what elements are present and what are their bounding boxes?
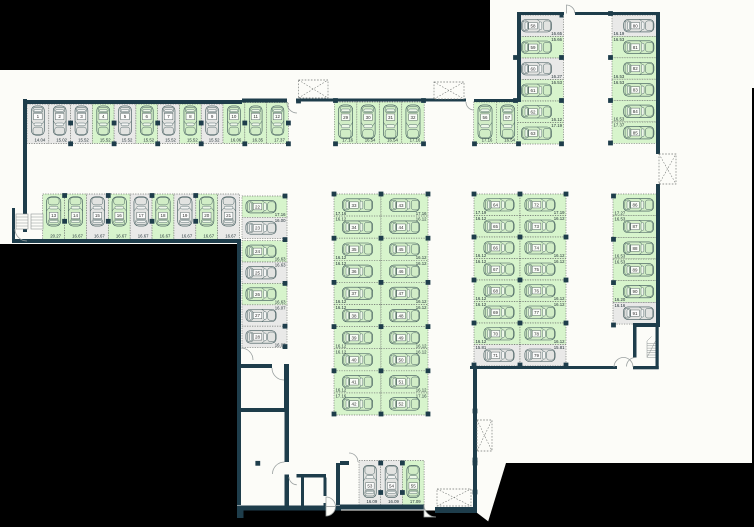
svg-text:62: 62 xyxy=(530,109,536,114)
svg-text:15: 15 xyxy=(95,213,101,218)
svg-text:15.52: 15.52 xyxy=(165,138,176,143)
svg-text:81: 81 xyxy=(633,45,639,50)
svg-text:77: 77 xyxy=(534,310,540,315)
svg-text:50: 50 xyxy=(398,357,404,362)
svg-text:17.27: 17.27 xyxy=(615,210,626,215)
svg-text:90: 90 xyxy=(632,289,638,294)
svg-text:16.27: 16.27 xyxy=(551,74,562,79)
svg-text:16.54: 16.54 xyxy=(387,138,398,143)
svg-text:80: 80 xyxy=(633,23,639,28)
svg-text:17.19: 17.19 xyxy=(476,210,487,215)
svg-text:86: 86 xyxy=(632,203,638,208)
svg-text:15.81: 15.81 xyxy=(554,345,565,350)
svg-text:46: 46 xyxy=(398,269,404,274)
svg-text:16.53: 16.53 xyxy=(615,260,626,265)
svg-text:17.09: 17.09 xyxy=(410,499,421,504)
svg-text:35: 35 xyxy=(351,247,357,252)
svg-text:67: 67 xyxy=(493,267,499,272)
svg-text:16.12: 16.12 xyxy=(476,302,487,307)
svg-text:16.67: 16.67 xyxy=(138,234,149,239)
svg-text:82: 82 xyxy=(633,66,639,71)
svg-text:25: 25 xyxy=(255,270,261,275)
svg-text:56: 56 xyxy=(483,115,489,120)
svg-text:16.53: 16.53 xyxy=(614,37,625,42)
svg-text:16.67: 16.67 xyxy=(225,234,236,239)
svg-text:16.67: 16.67 xyxy=(94,234,105,239)
svg-text:16.12: 16.12 xyxy=(476,339,487,344)
svg-text:16.12: 16.12 xyxy=(554,216,565,221)
svg-text:16.12: 16.12 xyxy=(336,388,347,393)
svg-text:75: 75 xyxy=(534,267,540,272)
svg-text:88: 88 xyxy=(632,246,638,251)
svg-text:11: 11 xyxy=(253,114,258,119)
svg-text:16.09: 16.09 xyxy=(366,499,377,504)
svg-text:17.16: 17.16 xyxy=(275,212,286,217)
svg-text:74: 74 xyxy=(534,245,540,250)
svg-text:30: 30 xyxy=(366,115,372,120)
svg-text:37: 37 xyxy=(351,291,357,296)
svg-text:16.12: 16.12 xyxy=(554,339,565,344)
svg-text:16.35: 16.35 xyxy=(252,138,263,143)
svg-text:16.12: 16.12 xyxy=(416,388,427,393)
svg-text:55: 55 xyxy=(411,484,417,489)
svg-text:16.12: 16.12 xyxy=(336,349,347,354)
svg-text:16.07: 16.07 xyxy=(275,305,286,310)
svg-text:66: 66 xyxy=(493,245,499,250)
svg-text:14: 14 xyxy=(73,213,79,218)
svg-text:17.16: 17.16 xyxy=(410,138,421,143)
svg-text:83: 83 xyxy=(633,88,639,93)
svg-text:16.12: 16.12 xyxy=(476,296,487,301)
svg-text:89: 89 xyxy=(632,268,638,273)
svg-text:16.12: 16.12 xyxy=(336,343,347,348)
svg-text:16.53: 16.53 xyxy=(615,216,626,221)
svg-text:16.12: 16.12 xyxy=(336,217,347,222)
svg-text:16.12: 16.12 xyxy=(336,305,347,310)
svg-text:23: 23 xyxy=(255,226,261,231)
svg-text:32: 32 xyxy=(410,115,416,120)
svg-text:22: 22 xyxy=(255,204,261,209)
svg-text:16.12: 16.12 xyxy=(416,343,427,348)
svg-text:73: 73 xyxy=(534,224,540,229)
svg-text:36: 36 xyxy=(351,269,357,274)
svg-text:38: 38 xyxy=(351,313,357,318)
svg-text:47: 47 xyxy=(398,291,404,296)
svg-text:16.53: 16.53 xyxy=(551,80,562,85)
svg-text:17.19: 17.19 xyxy=(551,123,562,128)
svg-text:42: 42 xyxy=(351,402,357,407)
svg-text:71: 71 xyxy=(493,353,499,358)
svg-text:16.12: 16.12 xyxy=(476,259,487,264)
svg-text:16.12: 16.12 xyxy=(476,253,487,258)
svg-text:45: 45 xyxy=(398,247,404,252)
svg-text:79: 79 xyxy=(534,353,540,358)
svg-text:16.19: 16.19 xyxy=(614,31,625,36)
svg-text:57: 57 xyxy=(505,115,511,120)
svg-text:61: 61 xyxy=(530,88,536,93)
svg-text:76: 76 xyxy=(534,288,540,293)
svg-text:17.37: 17.37 xyxy=(274,138,285,143)
svg-text:16: 16 xyxy=(117,213,123,218)
svg-text:15.81: 15.81 xyxy=(476,345,487,350)
svg-text:60: 60 xyxy=(530,66,536,71)
svg-text:16.12: 16.12 xyxy=(416,299,427,304)
svg-text:16.09: 16.09 xyxy=(388,499,399,504)
svg-text:17.16: 17.16 xyxy=(416,211,427,216)
svg-text:16.63: 16.63 xyxy=(275,263,286,268)
svg-text:48: 48 xyxy=(398,313,404,318)
svg-text:16.63: 16.63 xyxy=(275,300,286,305)
svg-text:87: 87 xyxy=(632,224,638,229)
svg-text:15.02: 15.02 xyxy=(56,138,67,143)
svg-text:16.67: 16.67 xyxy=(160,234,171,239)
svg-text:39: 39 xyxy=(351,335,357,340)
svg-text:15.52: 15.52 xyxy=(143,138,154,143)
svg-text:17.16: 17.16 xyxy=(336,394,347,399)
svg-text:44: 44 xyxy=(398,225,404,230)
svg-text:13: 13 xyxy=(51,213,57,218)
svg-text:15.52: 15.52 xyxy=(187,138,198,143)
svg-text:12: 12 xyxy=(275,114,281,119)
svg-text:70: 70 xyxy=(493,331,499,336)
svg-text:16.67: 16.67 xyxy=(116,234,127,239)
svg-text:53: 53 xyxy=(367,484,373,489)
svg-text:64: 64 xyxy=(493,202,499,207)
svg-text:16.12: 16.12 xyxy=(554,296,565,301)
svg-text:65: 65 xyxy=(493,224,499,229)
svg-text:24: 24 xyxy=(255,249,261,254)
svg-text:15.66: 15.66 xyxy=(551,37,562,42)
svg-text:16.12: 16.12 xyxy=(554,259,565,264)
svg-text:31: 31 xyxy=(388,115,394,120)
svg-text:68: 68 xyxy=(493,288,499,293)
svg-text:16.67: 16.67 xyxy=(72,234,83,239)
svg-text:91: 91 xyxy=(632,311,638,316)
svg-text:17.16: 17.16 xyxy=(482,138,493,143)
svg-text:15.52: 15.52 xyxy=(209,138,220,143)
svg-text:16.12: 16.12 xyxy=(336,255,347,260)
svg-text:16.53: 16.53 xyxy=(614,117,625,122)
svg-text:16.53: 16.53 xyxy=(614,74,625,79)
svg-text:16.06: 16.06 xyxy=(231,138,242,143)
svg-text:16.00: 16.00 xyxy=(275,218,286,223)
svg-text:16.53: 16.53 xyxy=(615,254,626,259)
svg-text:16.12: 16.12 xyxy=(551,117,562,122)
svg-text:15.52: 15.52 xyxy=(100,138,111,143)
svg-text:16.63: 16.63 xyxy=(275,257,286,262)
svg-text:21: 21 xyxy=(226,213,232,218)
svg-text:16.12: 16.12 xyxy=(554,302,565,307)
svg-text:16.12: 16.12 xyxy=(336,261,347,266)
svg-text:16.12: 16.12 xyxy=(416,255,427,260)
svg-text:16.67: 16.67 xyxy=(203,234,214,239)
svg-text:49: 49 xyxy=(398,335,404,340)
svg-text:18: 18 xyxy=(160,213,166,218)
svg-text:16.12: 16.12 xyxy=(416,261,427,266)
svg-text:59: 59 xyxy=(530,45,536,50)
svg-text:84: 84 xyxy=(633,109,639,114)
svg-text:17.16: 17.16 xyxy=(342,138,353,143)
svg-text:16.54: 16.54 xyxy=(365,138,376,143)
svg-text:40: 40 xyxy=(351,357,357,362)
svg-text:54: 54 xyxy=(389,484,395,489)
svg-text:28: 28 xyxy=(255,335,261,340)
svg-text:17.19: 17.19 xyxy=(554,210,565,215)
svg-text:16.16: 16.16 xyxy=(615,303,626,308)
svg-text:16.12: 16.12 xyxy=(416,349,427,354)
svg-text:85: 85 xyxy=(633,130,639,135)
svg-text:20: 20 xyxy=(204,213,210,218)
svg-text:63: 63 xyxy=(530,131,536,136)
svg-text:15.52: 15.52 xyxy=(78,138,89,143)
svg-text:26: 26 xyxy=(255,292,261,297)
svg-text:16.12: 16.12 xyxy=(336,299,347,304)
svg-text:14.04: 14.04 xyxy=(35,138,46,143)
svg-text:33: 33 xyxy=(351,203,357,208)
svg-text:19: 19 xyxy=(182,213,188,218)
svg-text:17.37: 17.37 xyxy=(614,123,625,128)
svg-text:34: 34 xyxy=(351,225,357,230)
svg-text:72: 72 xyxy=(534,202,540,207)
svg-text:78: 78 xyxy=(534,331,540,336)
svg-text:27: 27 xyxy=(255,313,261,318)
svg-text:43: 43 xyxy=(398,203,404,208)
svg-text:10: 10 xyxy=(231,114,237,119)
svg-text:16.67: 16.67 xyxy=(181,234,192,239)
svg-text:29: 29 xyxy=(343,115,349,120)
svg-text:16.12: 16.12 xyxy=(476,216,487,221)
svg-text:69: 69 xyxy=(493,310,499,315)
svg-text:16.54: 16.54 xyxy=(504,138,515,143)
svg-text:16.12: 16.12 xyxy=(416,217,427,222)
svg-text:20.27: 20.27 xyxy=(50,234,61,239)
svg-text:17.16: 17.16 xyxy=(336,211,347,216)
svg-text:16.20: 16.20 xyxy=(615,297,626,302)
svg-text:17: 17 xyxy=(139,213,145,218)
svg-text:17.16: 17.16 xyxy=(416,394,427,399)
svg-text:16.12: 16.12 xyxy=(416,305,427,310)
svg-text:16.53: 16.53 xyxy=(614,80,625,85)
svg-text:15.52: 15.52 xyxy=(122,138,133,143)
svg-text:58: 58 xyxy=(530,23,536,28)
svg-text:16.65: 16.65 xyxy=(551,31,562,36)
svg-text:51: 51 xyxy=(398,380,404,385)
svg-text:52: 52 xyxy=(398,402,404,407)
svg-text:41: 41 xyxy=(351,380,357,385)
svg-text:16.12: 16.12 xyxy=(554,253,565,258)
